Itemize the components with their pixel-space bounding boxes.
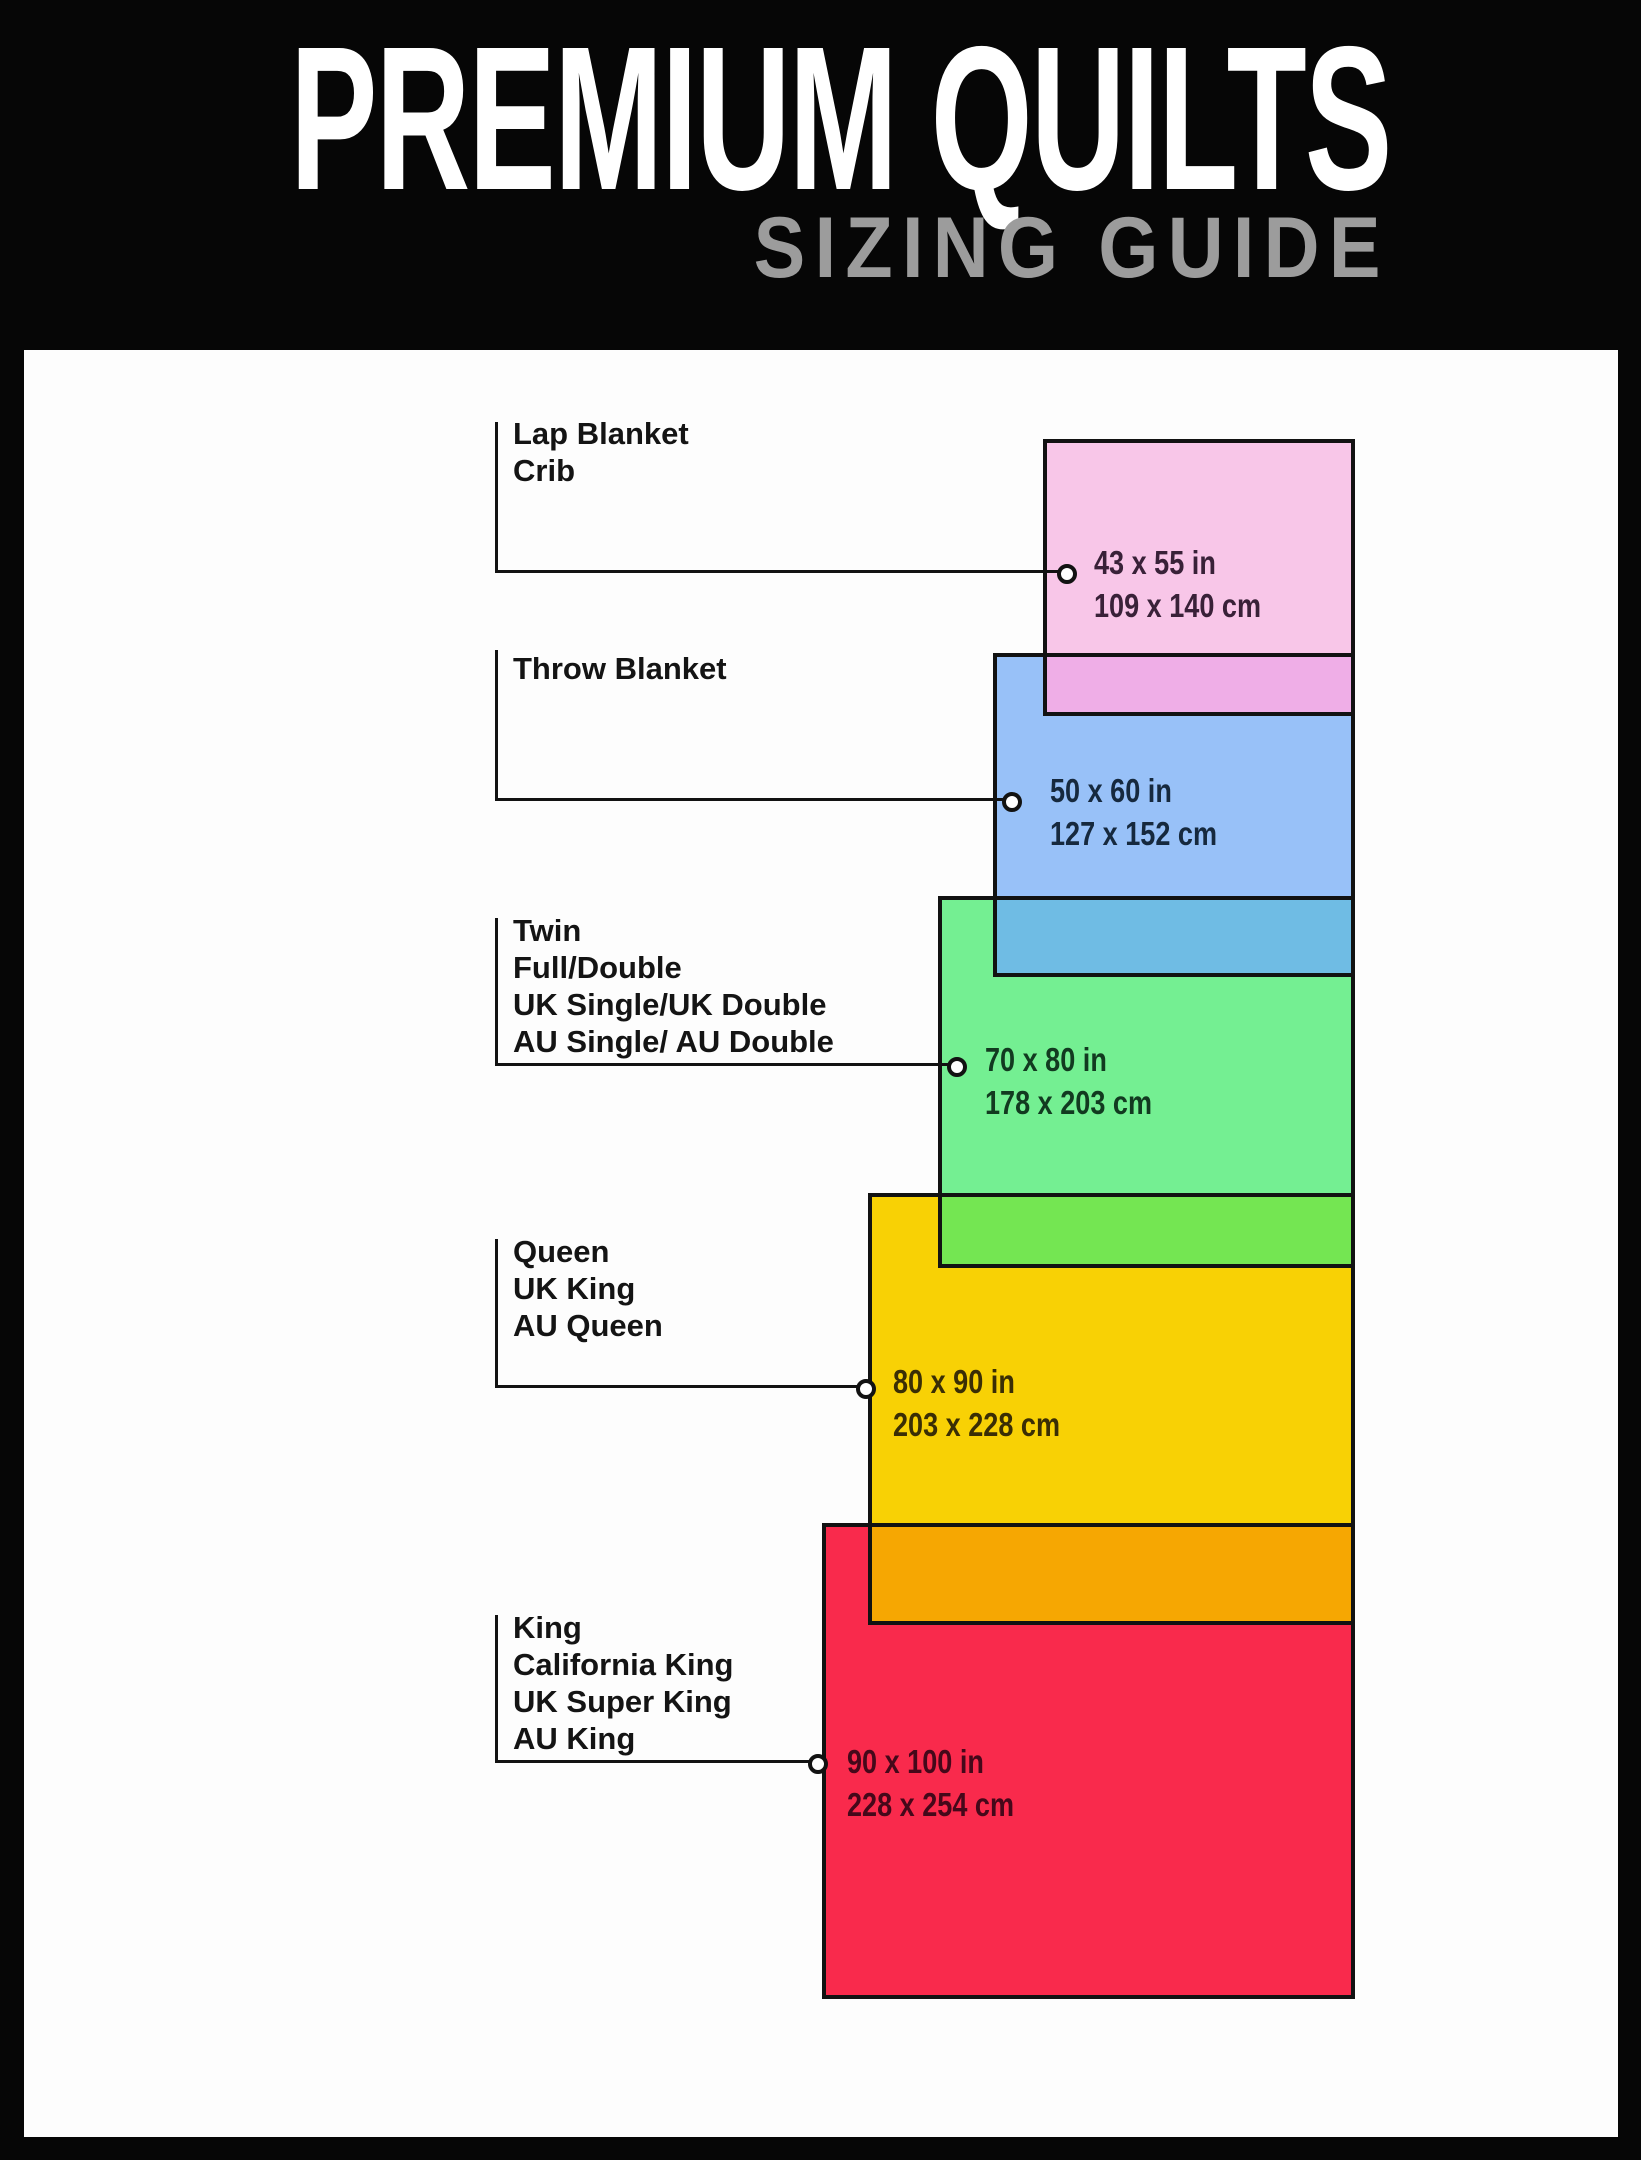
label-line: Twin xyxy=(513,912,834,949)
leader-vline-king xyxy=(495,1615,498,1763)
border-segment-throw-top xyxy=(1047,653,1351,657)
dimensions-throw-blanket: 50 x 60 in 127 x 152 cm xyxy=(1050,769,1217,855)
label-line: King xyxy=(513,1609,733,1646)
label-throw-blanket: Throw Blanket xyxy=(513,650,727,687)
overlap-queen-king xyxy=(872,1527,1351,1621)
overlap-lap-throw xyxy=(1047,657,1351,712)
sizing-guide-infographic: PREMIUM QUILTS SIZING GUIDE Lap Blanket … xyxy=(0,0,1641,2160)
label-line: AU King xyxy=(513,1720,733,1757)
leader-vline-queen xyxy=(495,1239,498,1388)
label-line: UK Super King xyxy=(513,1683,733,1720)
label-king: King California King UK Super King AU Ki… xyxy=(513,1609,733,1757)
label-line: Full/Double xyxy=(513,949,834,986)
dimensions-king: 90 x 100 in 228 x 254 cm xyxy=(847,1740,1014,1826)
leader-dot-throw xyxy=(1002,792,1022,812)
border-segment-twin-top xyxy=(997,896,1351,900)
dimensions-lap-blanket: 43 x 55 in 109 x 140 cm xyxy=(1094,541,1261,627)
dimensions-queen: 80 x 90 in 203 x 228 cm xyxy=(893,1360,1060,1446)
leader-hline-throw xyxy=(495,798,1012,801)
leader-hline-twin xyxy=(495,1063,957,1066)
page-subtitle: SIZING GUIDE xyxy=(754,205,1390,291)
label-line: California King xyxy=(513,1646,733,1683)
leader-hline-lap xyxy=(495,570,1067,573)
leader-vline-lap xyxy=(495,422,498,573)
border-segment-queen-top xyxy=(942,1193,1351,1197)
dimensions-twin: 70 x 80 in 178 x 203 cm xyxy=(985,1038,1152,1124)
leader-dot-king xyxy=(808,1754,828,1774)
leader-dot-twin xyxy=(947,1057,967,1077)
dimension-inches: 70 x 80 in xyxy=(985,1038,1152,1081)
dimension-cm: 228 x 254 cm xyxy=(847,1783,1014,1826)
label-line: Crib xyxy=(513,452,689,489)
leader-dot-lap xyxy=(1057,564,1077,584)
leader-hline-queen xyxy=(495,1385,866,1388)
label-line: UK Single/UK Double xyxy=(513,986,834,1023)
label-twin: Twin Full/Double UK Single/UK Double AU … xyxy=(513,912,834,1060)
label-line: AU Queen xyxy=(513,1307,663,1344)
label-queen: Queen UK King AU Queen xyxy=(513,1233,663,1344)
dimension-inches: 50 x 60 in xyxy=(1050,769,1217,812)
dimension-inches: 43 x 55 in xyxy=(1094,541,1261,584)
label-line: UK King xyxy=(513,1270,663,1307)
page-title: PREMIUM QUILTS xyxy=(290,16,1390,221)
dimension-cm: 203 x 228 cm xyxy=(893,1403,1060,1446)
overlap-throw-twin xyxy=(997,900,1351,973)
dimension-cm: 127 x 152 cm xyxy=(1050,812,1217,855)
label-line: AU Single/ AU Double xyxy=(513,1023,834,1060)
dimension-inches: 80 x 90 in xyxy=(893,1360,1060,1403)
leader-vline-twin xyxy=(495,918,498,1066)
border-segment-king-top xyxy=(872,1523,1351,1527)
label-lap-blanket: Lap Blanket Crib xyxy=(513,415,689,489)
leader-hline-king xyxy=(495,1760,818,1763)
label-line: Queen xyxy=(513,1233,663,1270)
dimension-cm: 178 x 203 cm xyxy=(985,1081,1152,1124)
dimension-inches: 90 x 100 in xyxy=(847,1740,1014,1783)
leader-vline-throw xyxy=(495,650,498,801)
label-line: Throw Blanket xyxy=(513,650,727,687)
dimension-cm: 109 x 140 cm xyxy=(1094,584,1261,627)
label-line: Lap Blanket xyxy=(513,415,689,452)
overlap-twin-queen xyxy=(942,1197,1351,1264)
paper-background xyxy=(24,350,1618,2137)
leader-dot-queen xyxy=(856,1379,876,1399)
